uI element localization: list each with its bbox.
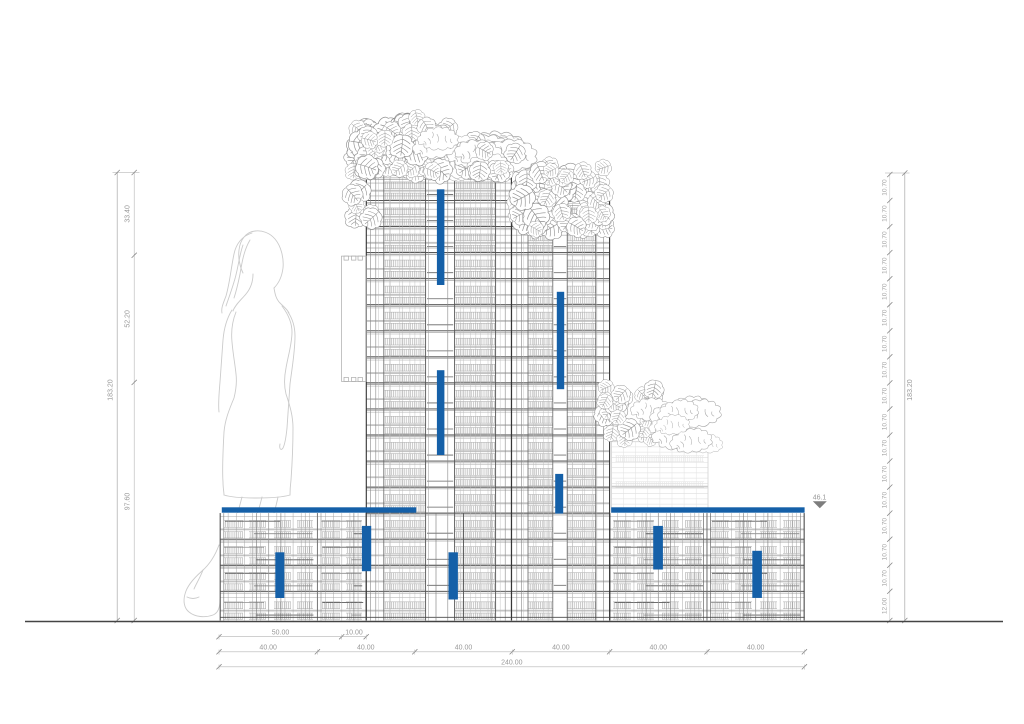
svg-text:10.70: 10.70 [882, 309, 889, 326]
svg-text:40.00: 40.00 [552, 645, 570, 652]
svg-text:10.70: 10.70 [882, 439, 889, 456]
svg-text:10.70: 10.70 [882, 335, 889, 352]
svg-text:46.1: 46.1 [813, 495, 827, 502]
svg-text:10.70: 10.70 [882, 179, 889, 196]
svg-text:10.70: 10.70 [882, 466, 889, 483]
svg-text:52.20: 52.20 [124, 310, 131, 328]
svg-text:40.00: 40.00 [650, 645, 668, 652]
svg-text:40.00: 40.00 [455, 645, 473, 652]
svg-text:10.70: 10.70 [882, 205, 889, 222]
svg-text:10.70: 10.70 [882, 413, 889, 430]
svg-text:40.00: 40.00 [747, 645, 765, 652]
svg-text:97.60: 97.60 [124, 493, 131, 511]
svg-text:183.20: 183.20 [907, 379, 914, 401]
svg-text:40.00: 40.00 [357, 645, 375, 652]
svg-text:10.70: 10.70 [882, 544, 889, 561]
svg-text:12.00: 12.00 [882, 597, 889, 614]
svg-text:10.70: 10.70 [882, 361, 889, 378]
svg-text:50.00: 50.00 [272, 630, 290, 637]
svg-text:183.20: 183.20 [107, 379, 114, 401]
svg-text:10.70: 10.70 [882, 518, 889, 535]
svg-text:10.00: 10.00 [345, 630, 363, 637]
svg-text:10.70: 10.70 [882, 231, 889, 248]
svg-text:240.00: 240.00 [501, 660, 523, 667]
svg-text:10.70: 10.70 [882, 570, 889, 587]
svg-text:40.00: 40.00 [259, 645, 277, 652]
svg-text:10.70: 10.70 [882, 492, 889, 509]
svg-text:10.70: 10.70 [882, 387, 889, 404]
svg-text:10.70: 10.70 [882, 283, 889, 300]
svg-text:33.40: 33.40 [124, 205, 131, 223]
svg-text:10.70: 10.70 [882, 257, 889, 274]
